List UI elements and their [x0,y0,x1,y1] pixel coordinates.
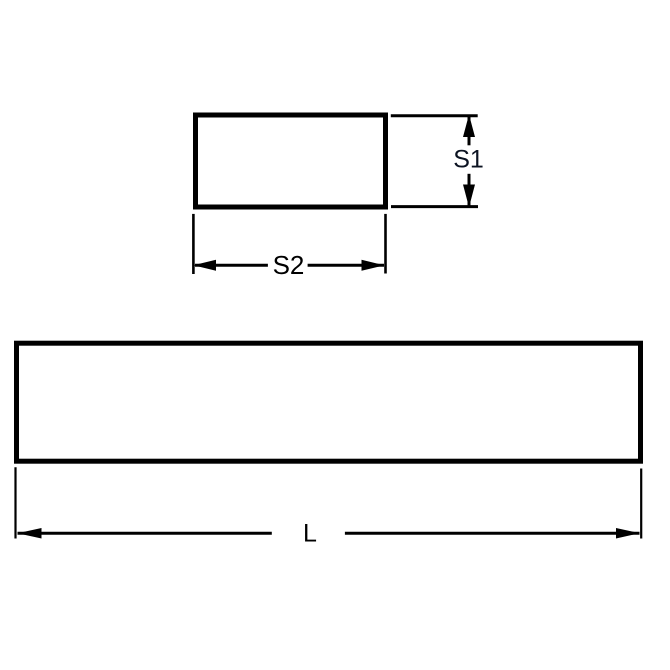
svg-text:S2: S2 [273,250,305,280]
svg-text:L: L [303,520,317,548]
svg-text:S1: S1 [453,146,484,174]
